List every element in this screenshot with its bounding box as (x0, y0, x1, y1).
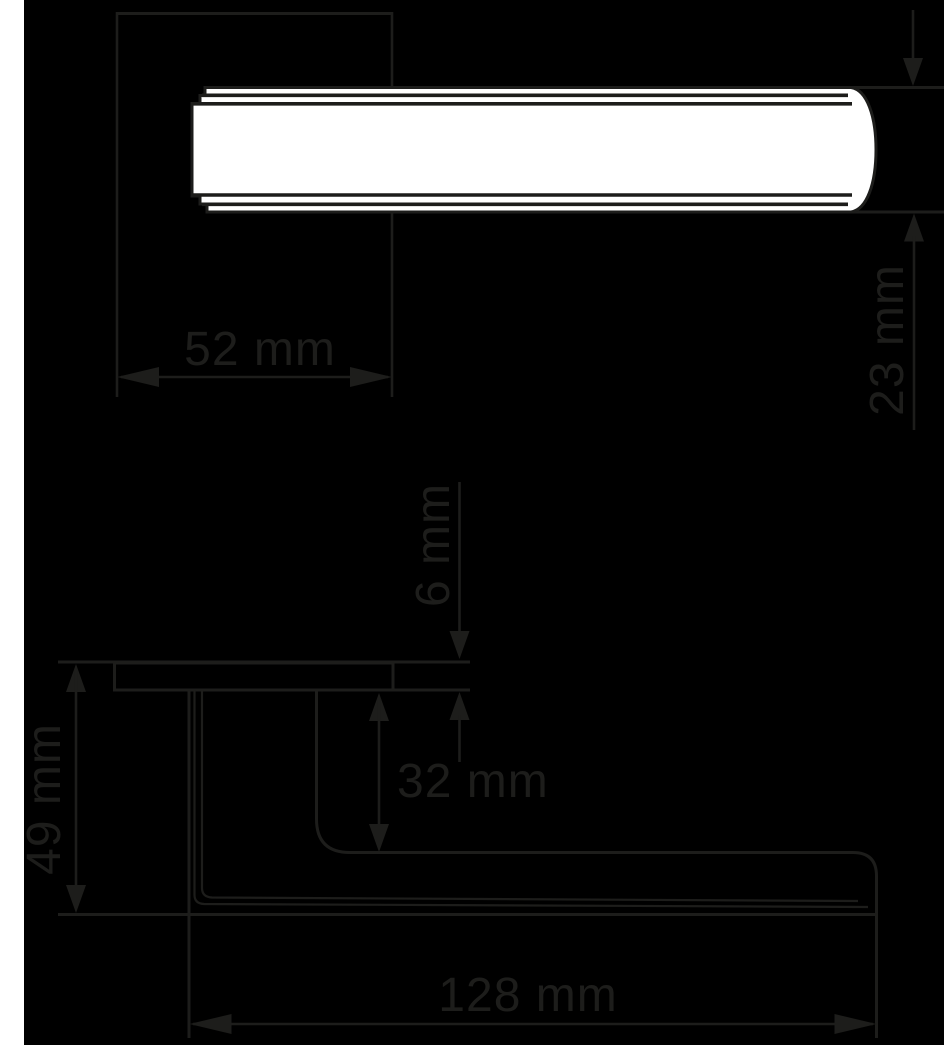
dimension-label-49mm: 49 mm (18, 723, 71, 875)
drawing-page: 52 mm 23 mm (0, 0, 944, 1045)
rose-side-outline (115, 663, 394, 690)
page-edge-strip (0, 0, 24, 1045)
dimension-arrow-32mm (369, 693, 389, 852)
arrowhead-down (369, 824, 389, 852)
dimension-label-52mm: 52 mm (184, 323, 336, 376)
technical-drawing-canvas: 52 mm 23 mm (0, 0, 944, 1045)
arrowhead-down (450, 631, 470, 659)
arrowhead-right (350, 367, 392, 387)
arrowhead-left (190, 1014, 232, 1034)
handle-side-view: 49 mm 6 mm 32 mm 128 mm (18, 482, 877, 1038)
dimension-label-6mm: 6 mm (407, 483, 460, 607)
dimension-label-128mm: 128 mm (438, 969, 617, 1022)
arrowhead-left (117, 367, 159, 387)
arrowhead-right (835, 1014, 877, 1034)
handle-top-view: 52 mm 23 mm (117, 10, 944, 430)
dimension-label-23mm: 23 mm (861, 264, 914, 416)
arrowhead-down (903, 58, 923, 86)
arrowhead-down (66, 885, 86, 913)
dimension-label-32mm: 32 mm (397, 755, 549, 808)
